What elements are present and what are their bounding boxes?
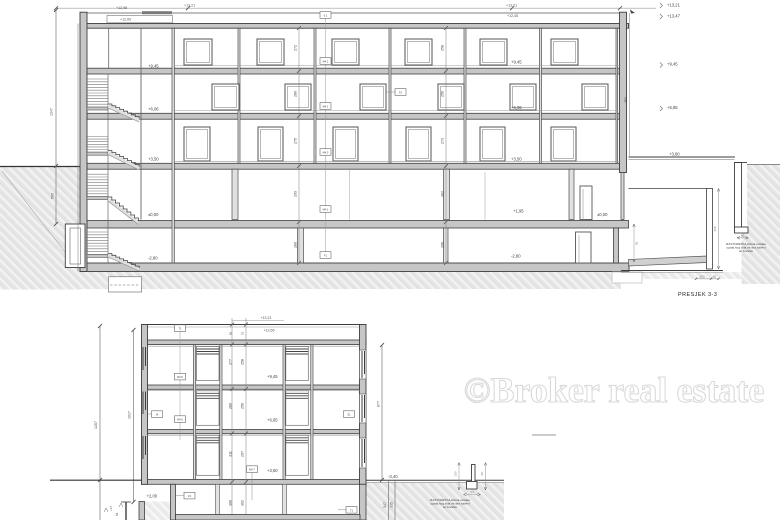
svg-text:±0,00: ±0,00 [597,212,608,217]
svg-text:256: 256 [240,403,244,409]
svg-text:+6,65: +6,65 [267,418,278,423]
svg-text:+3,50: +3,50 [267,468,278,473]
svg-text:305: 305 [713,226,717,231]
svg-text:+13,21: +13,21 [184,3,195,7]
svg-text:+12,98: +12,98 [116,6,127,10]
svg-text:877: 877 [376,401,380,407]
svg-text:54: 54 [115,512,119,516]
svg-text:277: 277 [228,359,232,365]
svg-text:©Broker real estate: ©Broker real estate [464,370,765,410]
svg-text:M4.6: M4.6 [177,418,183,422]
svg-text:M4.5: M4.5 [177,375,183,379]
svg-text:+3,60: +3,60 [669,152,680,157]
svg-text:92: 92 [635,242,639,246]
svg-text:56: 56 [228,332,232,336]
svg-text:+6,85: +6,85 [667,105,678,110]
svg-text:M4.7: M4.7 [249,468,255,472]
svg-text:272: 272 [294,45,298,51]
svg-text:an brvatku: an brvatku [739,249,753,253]
svg-text:+3,50: +3,50 [148,157,159,162]
svg-text:54: 54 [470,490,474,494]
svg-text:PRESJEK 3-3: PRESJEK 3-3 [678,292,717,298]
svg-text:+12,45: +12,45 [507,14,518,18]
svg-text:-2,80: -2,80 [148,255,158,260]
svg-text:+12,65: +12,65 [263,329,274,333]
svg-text:+1,95: +1,95 [513,209,524,214]
svg-text:+9,45: +9,45 [511,60,522,65]
svg-text:280: 280 [294,242,298,248]
svg-text:+12,60: +12,60 [120,18,131,22]
svg-text:M4.1: M4.1 [323,105,329,109]
svg-text:±0,00: ±0,00 [148,212,159,217]
svg-text:100: 100 [454,471,458,476]
svg-text:302: 302 [441,191,445,197]
svg-text:+9,45: +9,45 [667,61,678,66]
svg-text:M4.2: M4.2 [323,151,329,155]
svg-text:-2,80: -2,80 [511,253,521,258]
svg-text:560: 560 [51,193,55,199]
svg-text:+17: +17 [109,506,113,511]
svg-text:6.1: 6.1 [324,14,328,18]
svg-text:an brvatku: an brvatku [443,505,457,509]
svg-text:335: 335 [390,502,394,508]
svg-text:60: 60 [741,233,745,237]
svg-text:390: 390 [228,500,232,506]
svg-text:302: 302 [240,500,244,506]
svg-text:290: 290 [441,242,445,248]
svg-text:280: 280 [294,91,298,97]
svg-text:+6,06: +6,06 [148,107,159,112]
svg-text:1017: 1017 [128,411,132,419]
svg-text:72: 72 [240,332,244,336]
svg-text:1347: 1347 [50,108,54,116]
svg-text:+13,21: +13,21 [667,2,681,7]
svg-text:311: 311 [228,451,232,457]
svg-text:297: 297 [240,451,244,457]
svg-text:275: 275 [294,138,298,144]
svg-text:60: 60 [713,274,717,278]
svg-text:347: 347 [383,502,387,508]
svg-text:292: 292 [624,97,628,103]
svg-text:258: 258 [240,359,244,365]
svg-text:+3,50: +3,50 [511,157,522,162]
svg-text:1287: 1287 [94,421,98,429]
svg-text:M4.1: M4.1 [323,208,329,212]
svg-text:-3,40: -3,40 [388,474,398,479]
svg-text:+13,47: +13,47 [667,14,681,19]
svg-text:+13,21: +13,21 [506,3,517,7]
svg-text:293: 293 [294,191,298,197]
svg-text:256: 256 [441,91,445,97]
svg-text:+6,06: +6,06 [511,105,522,110]
svg-text:+13,21: +13,21 [260,316,271,320]
svg-text:+9,45: +9,45 [267,374,278,379]
svg-text:40: 40 [480,472,484,476]
svg-text:273: 273 [441,138,445,144]
svg-text:290: 290 [699,274,704,278]
svg-text:+2,00: +2,00 [147,494,158,499]
svg-text:M4.2: M4.2 [323,60,329,64]
svg-text:+9,45: +9,45 [148,63,159,68]
svg-text:280: 280 [228,403,232,409]
svg-text:258: 258 [441,45,445,51]
